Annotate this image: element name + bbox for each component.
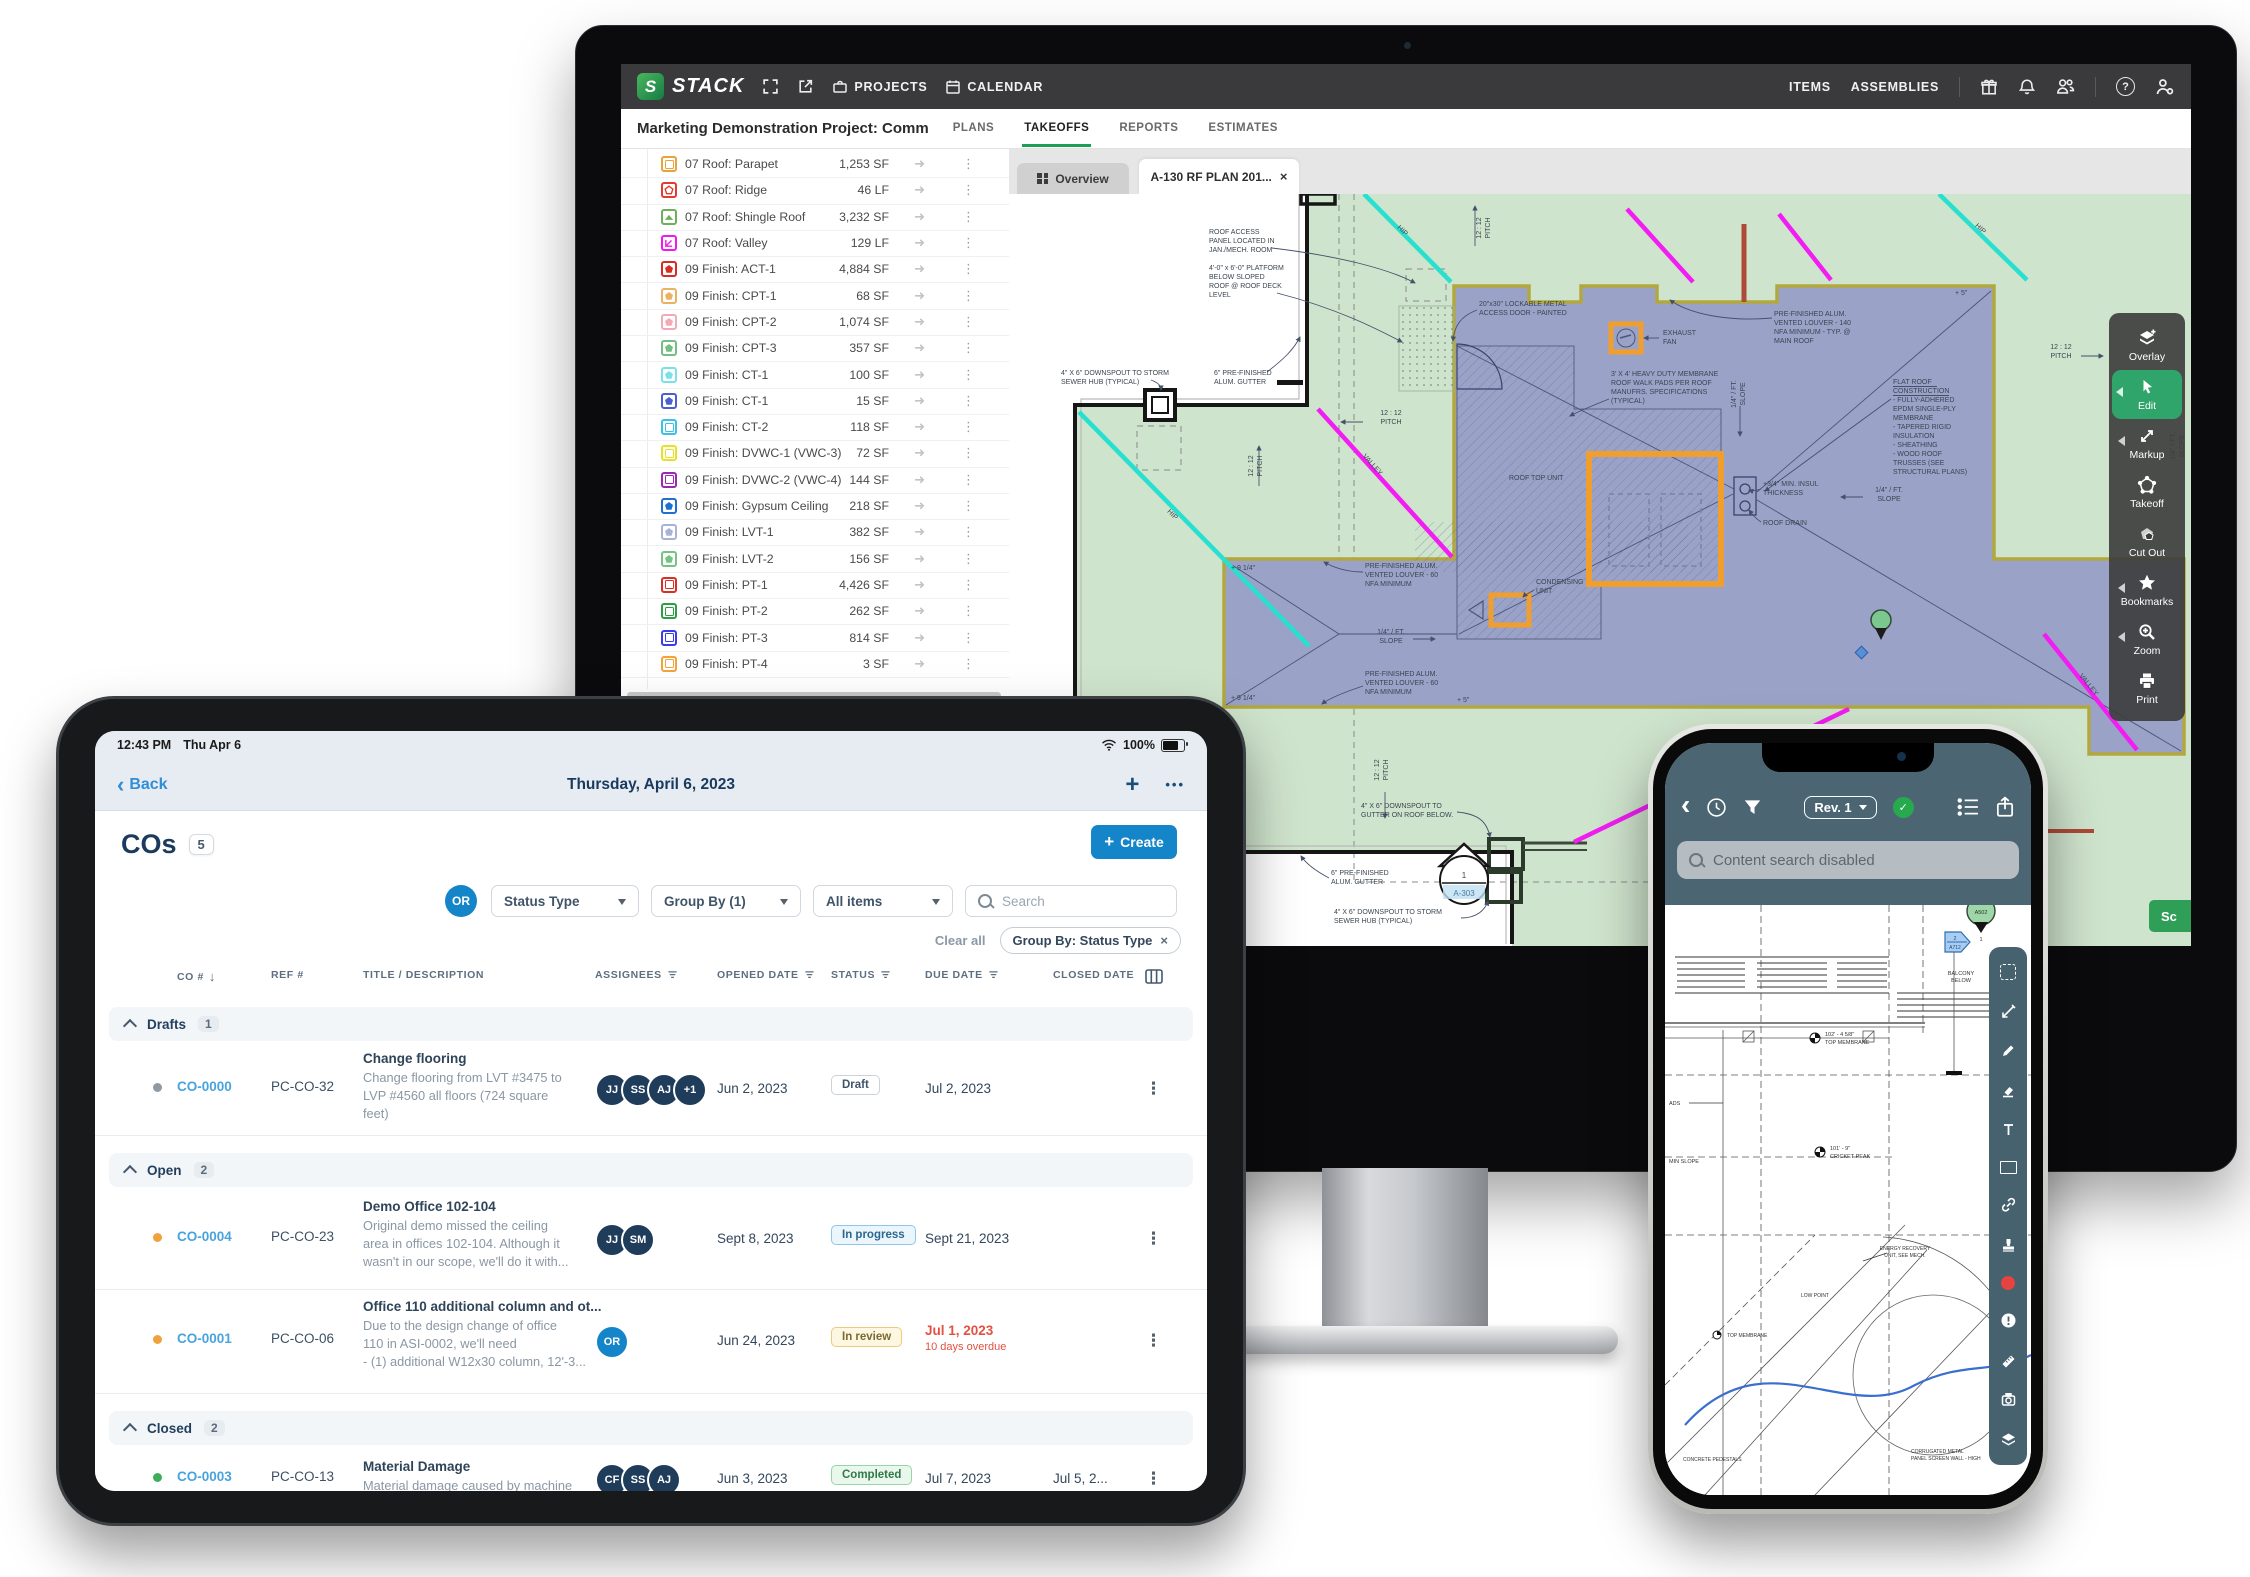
account-settings-icon[interactable] (2155, 77, 2175, 97)
marquee-select-icon[interactable] (2000, 964, 2016, 980)
share-icon[interactable] (1995, 796, 2015, 818)
takeoff-label: 07 Roof: Valley (685, 236, 767, 250)
group-count: 1 (198, 1016, 219, 1032)
takeoff-icon (661, 577, 677, 593)
due-date: Jul 2, 2023 (925, 1081, 991, 1096)
svg-text:EXHAUST: EXHAUST (1663, 330, 1697, 337)
close-tab-icon[interactable]: × (1280, 169, 1288, 184)
phone-camera (1897, 752, 1906, 761)
svg-text:12 : 12: 12 : 12 (2050, 344, 2072, 351)
svg-text:ADS: ADS (1669, 1101, 1681, 1107)
takeoff-icon (661, 235, 677, 251)
row-menu-icon[interactable]: ⋮ (962, 288, 975, 304)
avatar: +1 (673, 1073, 707, 1107)
takeoff-qty: 357 SF (849, 341, 889, 355)
tool-label: Zoom (2134, 645, 2161, 657)
goto-icon[interactable]: ➜ (914, 603, 925, 619)
takeoff-label: 07 Roof: Parapet (685, 157, 778, 171)
list-icon[interactable] (1957, 797, 1979, 817)
tool-label: Edit (2138, 400, 2156, 412)
row-menu-icon[interactable]: ⋮ (962, 340, 975, 356)
add-button[interactable]: + (1125, 771, 1139, 799)
group-by-select[interactable]: Group By (1) (651, 885, 801, 917)
takeoff-icon (661, 314, 677, 330)
divider (2095, 77, 2096, 97)
svg-text:(TYPICAL): (TYPICAL) (1611, 398, 1645, 405)
takeoff-icon (661, 551, 677, 567)
takeoff-icon (661, 445, 677, 461)
co-ref: PC-CO-32 (271, 1079, 334, 1094)
status-badge: Completed (831, 1465, 912, 1485)
takeoff-row[interactable]: 09 Finish: CPT-168 SF➜⋮ (621, 283, 1009, 310)
svg-text:PRE-FINISHED ALUM.: PRE-FINISHED ALUM. (1774, 311, 1846, 318)
svg-text:1/4" / FT.: 1/4" / FT. (1731, 380, 1738, 408)
content-search-input[interactable]: Content search disabled (1677, 841, 2019, 879)
takeoff-label: 09 Finish: LVT-1 (685, 525, 774, 539)
tool-print[interactable]: Print (2109, 664, 2185, 713)
nav-projects[interactable]: PROJECTS (832, 79, 927, 95)
collapse-icon (123, 1165, 137, 1179)
row-menu-icon[interactable]: ⋮ (1145, 1229, 1162, 1249)
takeoff-row[interactable]: 09 Finish: LVT-1382 SF➜⋮ (621, 519, 1009, 546)
row-menu-icon[interactable]: ⋮ (962, 235, 975, 251)
svg-text:PRE-FINISHED ALUM.: PRE-FINISHED ALUM. (1365, 671, 1437, 678)
filter-icon (667, 970, 678, 981)
chevron-down-icon (1859, 805, 1867, 814)
co-desc: Original demo missed the ceilingarea in … (363, 1217, 613, 1271)
takeoff-row[interactable]: 09 Finish: CT-115 SF➜⋮ (621, 388, 1009, 415)
svg-text:ALUM. GUTTER: ALUM. GUTTER (1214, 379, 1266, 386)
group-closed[interactable]: Closed 2 (109, 1411, 1193, 1445)
co-number-link[interactable]: CO-0004 (177, 1229, 232, 1244)
co-number-link[interactable]: CO-0001 (177, 1331, 232, 1346)
gift-icon[interactable] (1980, 78, 1998, 96)
rectangle-tool-icon[interactable] (2000, 1161, 2017, 1174)
co-number-link[interactable]: CO-0000 (177, 1079, 232, 1094)
nav-calendar[interactable]: CALENDAR (945, 79, 1043, 95)
col-co[interactable]: CO #↓ (177, 969, 261, 984)
svg-text:VENTED LOUVER - 60: VENTED LOUVER - 60 (1365, 680, 1438, 687)
row-menu-icon[interactable]: ⋮ (962, 656, 975, 672)
row-menu-icon[interactable]: ⋮ (962, 209, 975, 225)
revision-select[interactable]: Rev. 1 (1804, 796, 1876, 819)
svg-text:3' X 4' HEAVY DUTY MEMBRANE: 3' X 4' HEAVY DUTY MEMBRANE (1611, 371, 1719, 378)
svg-text:A-303: A-303 (1453, 889, 1475, 898)
sheet-label: A-130 RF PLAN 201... (1151, 170, 1272, 184)
takeoff-qty: 118 SF (850, 420, 889, 434)
layers-icon[interactable] (2000, 1431, 2017, 1448)
takeoff-row[interactable]: 09 Finish: DVWC-1 (VWC-3)72 SF➜⋮ (621, 440, 1009, 467)
svg-text:ROOF DRAIN: ROOF DRAIN (1763, 520, 1807, 527)
status-badge: Draft (831, 1075, 880, 1095)
svg-text:MEMBRANE: MEMBRANE (1893, 415, 1934, 422)
tool-label: Cut Out (2129, 547, 2165, 559)
svg-text:SEWER HUB (TYPICAL): SEWER HUB (TYPICAL) (1334, 918, 1412, 925)
svg-text:4" X 6" DOWNSPOUT TO: 4" X 6" DOWNSPOUT TO (1361, 803, 1442, 810)
takeoff-row[interactable]: 09 Finish: Gypsum Ceiling218 SF➜⋮ (621, 493, 1009, 520)
svg-text:UNIT: UNIT (1536, 588, 1553, 595)
tool-overlay[interactable]: Overlay (2109, 321, 2185, 370)
takeoff-icon (661, 288, 677, 304)
tab-takeoffs[interactable]: TAKEOFFS (1022, 110, 1091, 147)
takeoff-qty: 46 LF (858, 183, 889, 197)
camera-icon[interactable] (2000, 1391, 2017, 1408)
svg-text:THICKNESS: THICKNESS (1763, 490, 1803, 497)
svg-text:TOP MEMBRANE: TOP MEMBRANE (1825, 1040, 1870, 1046)
row-menu-icon[interactable]: ⋮ (1145, 1079, 1162, 1099)
tool-bookmarks[interactable]: Bookmarks (2109, 566, 2185, 615)
goto-icon[interactable]: ➜ (914, 235, 925, 251)
svg-text:+3/4" MIN. INSUL: +3/4" MIN. INSUL (1763, 481, 1819, 488)
svg-text:TOP MEMBRANE: TOP MEMBRANE (1727, 1333, 1768, 1339)
svg-text:JAN./MECH. ROOM: JAN./MECH. ROOM (1209, 247, 1273, 254)
app-topbar: S STACK PROJECTS CALENDAR ITEMS ASSEMBLI… (621, 64, 2191, 109)
group-label: Drafts (147, 1017, 186, 1032)
takeoff-row[interactable]: 09 Finish: CT-1100 SF➜⋮ (621, 361, 1009, 388)
svg-text:PRE-FINISHED ALUM.: PRE-FINISHED ALUM. (1365, 563, 1437, 570)
goto-icon[interactable]: ➜ (914, 209, 925, 225)
takeoff-label: 09 Finish: CT-2 (685, 420, 768, 434)
co-row[interactable]: CO-0004 PC-CO-23 Demo Office 102-104 Ori… (95, 1189, 1207, 1290)
takeoff-row[interactable]: 07 Roof: Parapet1,253 SF➜⋮ (621, 151, 1009, 178)
co-number-link[interactable]: CO-0003 (177, 1469, 232, 1484)
svg-text:NFA MINIMUM: NFA MINIMUM (1365, 689, 1412, 696)
owner-avatar[interactable]: OR (445, 885, 477, 917)
nav-date-title: Thursday, April 6, 2023 (95, 776, 1207, 794)
svg-text:BALCONY: BALCONY (1948, 971, 1975, 977)
row-menu-icon[interactable]: ⋮ (1145, 1469, 1162, 1489)
group-count: 2 (194, 1162, 215, 1178)
opened-date: Jun 2, 2023 (717, 1081, 788, 1096)
svg-text:Sc: Sc (2161, 909, 2177, 924)
synced-check-icon: ✓ (1893, 797, 1914, 818)
phone-device: ‹ Rev. 1 ✓ Content search disabled (1648, 724, 2048, 1514)
tool-markup[interactable]: Markup (2109, 419, 2185, 468)
count-badge: 5 (189, 834, 214, 855)
group-drafts[interactable]: Drafts 1 (109, 1007, 1193, 1041)
groupby-chip[interactable]: Group By: Status Type× (1000, 927, 1181, 954)
takeoff-icon (661, 261, 677, 277)
goto-icon[interactable]: ➜ (914, 182, 925, 198)
group-open[interactable]: Open 2 (109, 1153, 1193, 1187)
svg-text:ROOF @ ROOF DECK: ROOF @ ROOF DECK (1209, 283, 1282, 290)
users-icon[interactable] (2056, 77, 2075, 96)
cursor-icon (2137, 377, 2157, 397)
plan-tool-rail: Overlay Edit Markup Takeoff (2109, 313, 2185, 721)
goto-icon[interactable]: ➜ (914, 577, 925, 593)
co-ref: PC-CO-13 (271, 1469, 334, 1484)
text-tool-icon[interactable] (2000, 1121, 2017, 1138)
col-title[interactable]: TITLE / DESCRIPTION (363, 969, 613, 981)
svg-text:12 : 12: 12 : 12 (1374, 759, 1381, 781)
svg-text:PANEL SCREEN WALL - HIGH: PANEL SCREEN WALL - HIGH (1911, 1456, 1981, 1462)
status-badge: In review (831, 1327, 902, 1347)
svg-text:12 : 12: 12 : 12 (1380, 410, 1402, 417)
opened-date: Jun 24, 2023 (717, 1333, 795, 1348)
svg-text:A712: A712 (1949, 945, 1961, 951)
columns-settings-icon[interactable] (1145, 969, 1175, 984)
row-menu-icon[interactable]: ⋮ (962, 498, 975, 514)
goto-icon[interactable]: ➜ (914, 393, 925, 409)
takeoff-label: 09 Finish: PT-1 (685, 578, 768, 592)
svg-text:MIN SLOPE: MIN SLOPE (1669, 1159, 1699, 1165)
row-menu-icon[interactable]: ⋮ (962, 630, 975, 646)
nav-assemblies[interactable]: ASSEMBLIES (1851, 80, 1939, 94)
row-menu-icon[interactable]: ⋮ (962, 524, 975, 540)
columns-icon (1145, 969, 1163, 984)
phone-plan-canvas[interactable]: A502 1 2 A712 BALCONY BELOW 102' - 4 5/8… (1665, 905, 2031, 1495)
takeoff-qty: 72 SF (856, 446, 889, 460)
monitor-stand (1322, 1168, 1488, 1330)
tab-sheet-a130[interactable]: A-130 RF PLAN 201... × (1139, 159, 1299, 194)
svg-text:CONDENSING: CONDENSING (1536, 579, 1583, 586)
link-icon[interactable] (2000, 1196, 2017, 1213)
status-dot (153, 1083, 162, 1092)
goto-icon[interactable]: ➜ (914, 656, 925, 672)
row-menu-icon[interactable]: ⋮ (962, 577, 975, 593)
co-row[interactable]: CO-0001 PC-CO-06 Office 110 additional c… (95, 1289, 1207, 1394)
svg-text:LEVEL: LEVEL (1209, 292, 1231, 299)
row-menu-icon[interactable]: ⋮ (962, 367, 975, 383)
takeoff-row[interactable]: 09 Finish: LVT-2156 SF➜⋮ (621, 546, 1009, 573)
group-label: Closed (147, 1421, 192, 1436)
col-assignees[interactable]: ASSIGNEES (595, 969, 715, 981)
svg-text:INSULATION: INSULATION (1893, 433, 1935, 440)
alert-icon[interactable] (2000, 1312, 2017, 1329)
tool-label: Overlay (2129, 351, 2165, 363)
takeoff-icon (661, 209, 677, 225)
takeoff-row[interactable]: 09 Finish: ACT-14,884 SF➜⋮ (621, 256, 1009, 283)
search-placeholder: Content search disabled (1713, 852, 1875, 869)
row-menu-icon[interactable]: ⋮ (962, 393, 975, 409)
svg-text:PITCH: PITCH (1383, 760, 1390, 781)
goto-icon[interactable]: ➜ (914, 524, 925, 540)
takeoff-row[interactable]: 09 Finish: PT-3814 SF➜⋮ (621, 624, 1009, 651)
svg-text:PITCH: PITCH (2051, 353, 2072, 360)
pentagon-nodes-icon (2137, 475, 2157, 495)
due-date: Jul 1, 2023 (925, 1323, 1043, 1338)
row-menu-icon[interactable]: ⋮ (962, 156, 975, 172)
svg-text:- FULLY-ADHERED: - FULLY-ADHERED (1893, 397, 1954, 404)
svg-text:12 : 12: 12 : 12 (1476, 217, 1483, 239)
divider (1959, 77, 1960, 97)
goto-icon[interactable]: ➜ (914, 551, 925, 567)
briefcase-icon (832, 79, 848, 95)
flyout-arrow-icon (2113, 632, 2125, 642)
takeoff-row[interactable]: 09 Finish: PT-43 SF➜⋮ (621, 651, 1009, 678)
tool-zoom[interactable]: Zoom (2109, 615, 2185, 664)
takeoff-qty: 814 SF (849, 631, 889, 645)
tablet-device: 12:43 PM Thu Apr 6 100% Thursday, April … (56, 696, 1246, 1526)
svg-text:+ 9 1/4": + 9 1/4" (1231, 565, 1256, 572)
collapse-icon (123, 1423, 137, 1437)
tool-label: Print (2136, 694, 2158, 706)
scale-button[interactable]: Sc (2149, 900, 2191, 932)
calendar-icon (945, 79, 961, 95)
co-desc: Material damage caused by machine (363, 1477, 613, 1491)
more-menu-button[interactable]: ••• (1165, 777, 1185, 792)
svg-text:PITCH: PITCH (1381, 419, 1402, 426)
nav-items[interactable]: ITEMS (1789, 80, 1831, 94)
takeoff-row[interactable]: 09 Finish: DVWC-2 (VWC-4)144 SF➜⋮ (621, 467, 1009, 494)
goto-icon[interactable]: ➜ (914, 340, 925, 356)
col-status[interactable]: STATUS (831, 969, 931, 981)
takeoff-label: 09 Finish: CPT-3 (685, 341, 777, 355)
goto-icon[interactable]: ➜ (914, 419, 925, 435)
tool-takeoff[interactable]: Takeoff (2109, 468, 2185, 517)
row-menu-icon[interactable]: ⋮ (1145, 1331, 1162, 1351)
takeoff-qty: 100 SF (849, 368, 889, 382)
table-header: CO #↓ REF # TITLE / DESCRIPTION ASSIGNEE… (95, 969, 1207, 995)
row-menu-icon[interactable]: ⋮ (962, 472, 975, 488)
svg-text:1: 1 (1462, 871, 1467, 880)
goto-icon[interactable]: ➜ (914, 498, 925, 514)
svg-text:CONCRETE PEDESTALS: CONCRETE PEDESTALS (1683, 1457, 1742, 1463)
col-ref[interactable]: REF # (271, 969, 355, 981)
bell-icon[interactable] (2018, 78, 2036, 96)
status-dot (153, 1233, 162, 1242)
row-menu-icon[interactable]: ⋮ (962, 314, 975, 330)
items-select[interactable]: All items (813, 885, 953, 917)
svg-text:- SHEATHING: - SHEATHING (1893, 442, 1938, 449)
tool-cutout[interactable]: Cut Out (2109, 517, 2185, 566)
tab-reports[interactable]: REPORTS (1117, 110, 1180, 147)
goto-icon[interactable]: ➜ (914, 445, 925, 461)
svg-text:SLOPE: SLOPE (1740, 382, 1747, 406)
tab-estimates[interactable]: ESTIMATES (1206, 110, 1279, 147)
co-desc: Due to the design change of office110 in… (363, 1317, 613, 1371)
takeoff-label: 09 Finish: PT-3 (685, 631, 768, 645)
col-closed[interactable]: CLOSED DATE (1053, 969, 1145, 981)
co-desc: Change flooring from LVT #3475 toLVP #45… (363, 1069, 613, 1123)
chevron-down-icon (618, 899, 626, 909)
svg-text:PITCH: PITCH (1485, 218, 1492, 239)
create-button[interactable]: + Create (1091, 825, 1177, 859)
fullscreen-icon[interactable] (762, 78, 779, 95)
stack-logo[interactable]: S STACK (637, 73, 744, 100)
chevron-down-icon (932, 899, 940, 909)
takeoff-row[interactable]: 09 Finish: CPT-3357 SF➜⋮ (621, 335, 1009, 362)
status-date: Thu Apr 6 (183, 738, 241, 752)
svg-text:1/4" / FT.: 1/4" / FT. (1875, 487, 1903, 494)
svg-text:STRUCTURAL PLANS): STRUCTURAL PLANS) (1893, 469, 1967, 476)
pencil-icon[interactable] (2000, 1042, 2017, 1059)
svg-text:SLOPE: SLOPE (1379, 638, 1403, 645)
takeoff-row[interactable]: 09 Finish: PT-14,426 SF➜⋮ (621, 572, 1009, 599)
takeoff-label: 09 Finish: PT-4 (685, 657, 768, 671)
search-icon (978, 894, 992, 908)
tool-edit[interactable]: Edit (2112, 370, 2182, 419)
takeoff-row[interactable]: 07 Roof: Shingle Roof3,232 SF➜⋮ (621, 204, 1009, 231)
svg-text:NFA MINIMUM: NFA MINIMUM (1365, 581, 1412, 588)
goto-icon[interactable]: ➜ (914, 630, 925, 646)
takeoff-row[interactable]: 09 Finish: CPT-21,074 SF➜⋮ (621, 309, 1009, 336)
goto-icon[interactable]: ➜ (914, 261, 925, 277)
project-header: Marketing Demonstration Project: Comm PL… (621, 109, 2191, 149)
back-chevron-icon[interactable]: ‹ (1681, 791, 1690, 819)
svg-text:VENTED LOUVER - 60: VENTED LOUVER - 60 (1365, 572, 1438, 579)
tool-label: Bookmarks (2121, 596, 2174, 608)
tab-plans[interactable]: PLANS (951, 110, 996, 147)
svg-text:4" X 6" DOWNSPOUT TO STORM: 4" X 6" DOWNSPOUT TO STORM (1061, 370, 1169, 377)
co-row[interactable]: CO-0003 PC-CO-13 Material Damage Materia… (95, 1447, 1207, 1491)
flyout-arrow-icon (2111, 387, 2123, 397)
filter-funnel-icon[interactable] (1743, 798, 1762, 817)
cos-page: COs 5 + Create OR Status Type Group By (… (95, 811, 1207, 1491)
goto-icon[interactable]: ➜ (914, 156, 925, 172)
svg-text:4" X 6" DOWNSPOUT TO STORM: 4" X 6" DOWNSPOUT TO STORM (1334, 909, 1442, 916)
status-type-select[interactable]: Status Type (491, 885, 639, 917)
col-due[interactable]: DUE DATE (925, 969, 1043, 981)
clear-all-link[interactable]: Clear all (935, 933, 986, 948)
takeoff-qty: 382 SF (849, 525, 889, 539)
goto-icon[interactable]: ➜ (914, 288, 925, 304)
row-menu-icon[interactable]: ⋮ (962, 261, 975, 277)
help-icon[interactable]: ? (2116, 77, 2135, 96)
svg-text:FAN: FAN (1663, 339, 1677, 346)
ruler-icon[interactable] (2000, 1352, 2017, 1369)
flyout-arrow-icon (2113, 436, 2125, 446)
row-menu-icon[interactable]: ⋮ (962, 419, 975, 435)
svg-text:+ 5": + 5" (1457, 697, 1470, 704)
stamp-icon[interactable] (2000, 1236, 2017, 1253)
co-row[interactable]: CO-0000 PC-CO-32 Change flooring Change … (95, 1043, 1207, 1136)
zoom-in-icon (2137, 622, 2157, 642)
tab-overview[interactable]: Overview (1017, 163, 1129, 194)
takeoff-row[interactable]: 07 Roof: Ridge46 LF➜⋮ (621, 177, 1009, 204)
takeoff-qty: 262 SF (849, 604, 889, 618)
goto-icon[interactable]: ➜ (914, 472, 925, 488)
takeoff-icon (661, 393, 677, 409)
group-count: 2 (204, 1420, 225, 1436)
plus-icon: + (1104, 832, 1114, 852)
svg-text:GUTTER ON ROOF BELOW.: GUTTER ON ROOF BELOW. (1361, 812, 1453, 819)
avatar: AJ (647, 1463, 681, 1491)
svg-text:MANUFRS. SPECIFICATIONS: MANUFRS. SPECIFICATIONS (1611, 389, 1708, 396)
takeoff-row[interactable]: 07 Roof: Valley129 LF➜⋮ (621, 230, 1009, 257)
active-filters: Clear all Group By: Status Type× (935, 927, 1181, 954)
col-opened[interactable]: OPENED DATE (717, 969, 821, 981)
row-menu-icon[interactable]: ⋮ (962, 445, 975, 461)
row-menu-icon[interactable]: ⋮ (962, 551, 975, 567)
history-clock-icon[interactable] (1706, 797, 1727, 818)
svg-text:6" PRE-FINISHED: 6" PRE-FINISHED (1214, 370, 1272, 377)
goto-icon[interactable]: ➜ (914, 367, 925, 383)
takeoff-qty: 1,253 SF (839, 157, 889, 171)
eraser-icon[interactable] (2000, 1082, 2017, 1099)
calendar-label: CALENDAR (967, 80, 1043, 94)
svg-text:BELOW SLOPED: BELOW SLOPED (1209, 274, 1265, 281)
svg-text:+ 9 1/4": + 9 1/4" (1231, 695, 1256, 702)
remove-chip-icon[interactable]: × (1160, 933, 1168, 948)
measure-arrow-icon[interactable] (2000, 1003, 2017, 1020)
svg-text:TRUSSES (SEE: TRUSSES (SEE (1893, 460, 1945, 467)
goto-icon[interactable]: ➜ (914, 314, 925, 330)
search-input[interactable]: Search (965, 885, 1177, 917)
svg-text:NFA MINIMUM - TYP. @: NFA MINIMUM - TYP. @ (1774, 329, 1850, 336)
external-link-icon[interactable] (797, 78, 814, 95)
record-dot-icon[interactable] (2001, 1276, 2015, 1290)
svg-text:LOW POINT: LOW POINT (1801, 1293, 1829, 1299)
svg-text:12 : 12: 12 : 12 (1248, 455, 1255, 477)
takeoff-qty: 129 LF (851, 236, 889, 250)
row-menu-icon[interactable]: ⋮ (962, 182, 975, 198)
takeoff-row[interactable]: 09 Finish: CT-2118 SF➜⋮ (621, 414, 1009, 441)
status-dot (153, 1335, 162, 1344)
row-menu-icon[interactable]: ⋮ (962, 603, 975, 619)
takeoff-label: 09 Finish: CPT-1 (685, 289, 777, 303)
takeoff-row[interactable]: 09 Finish: PT-2262 SF➜⋮ (621, 598, 1009, 625)
